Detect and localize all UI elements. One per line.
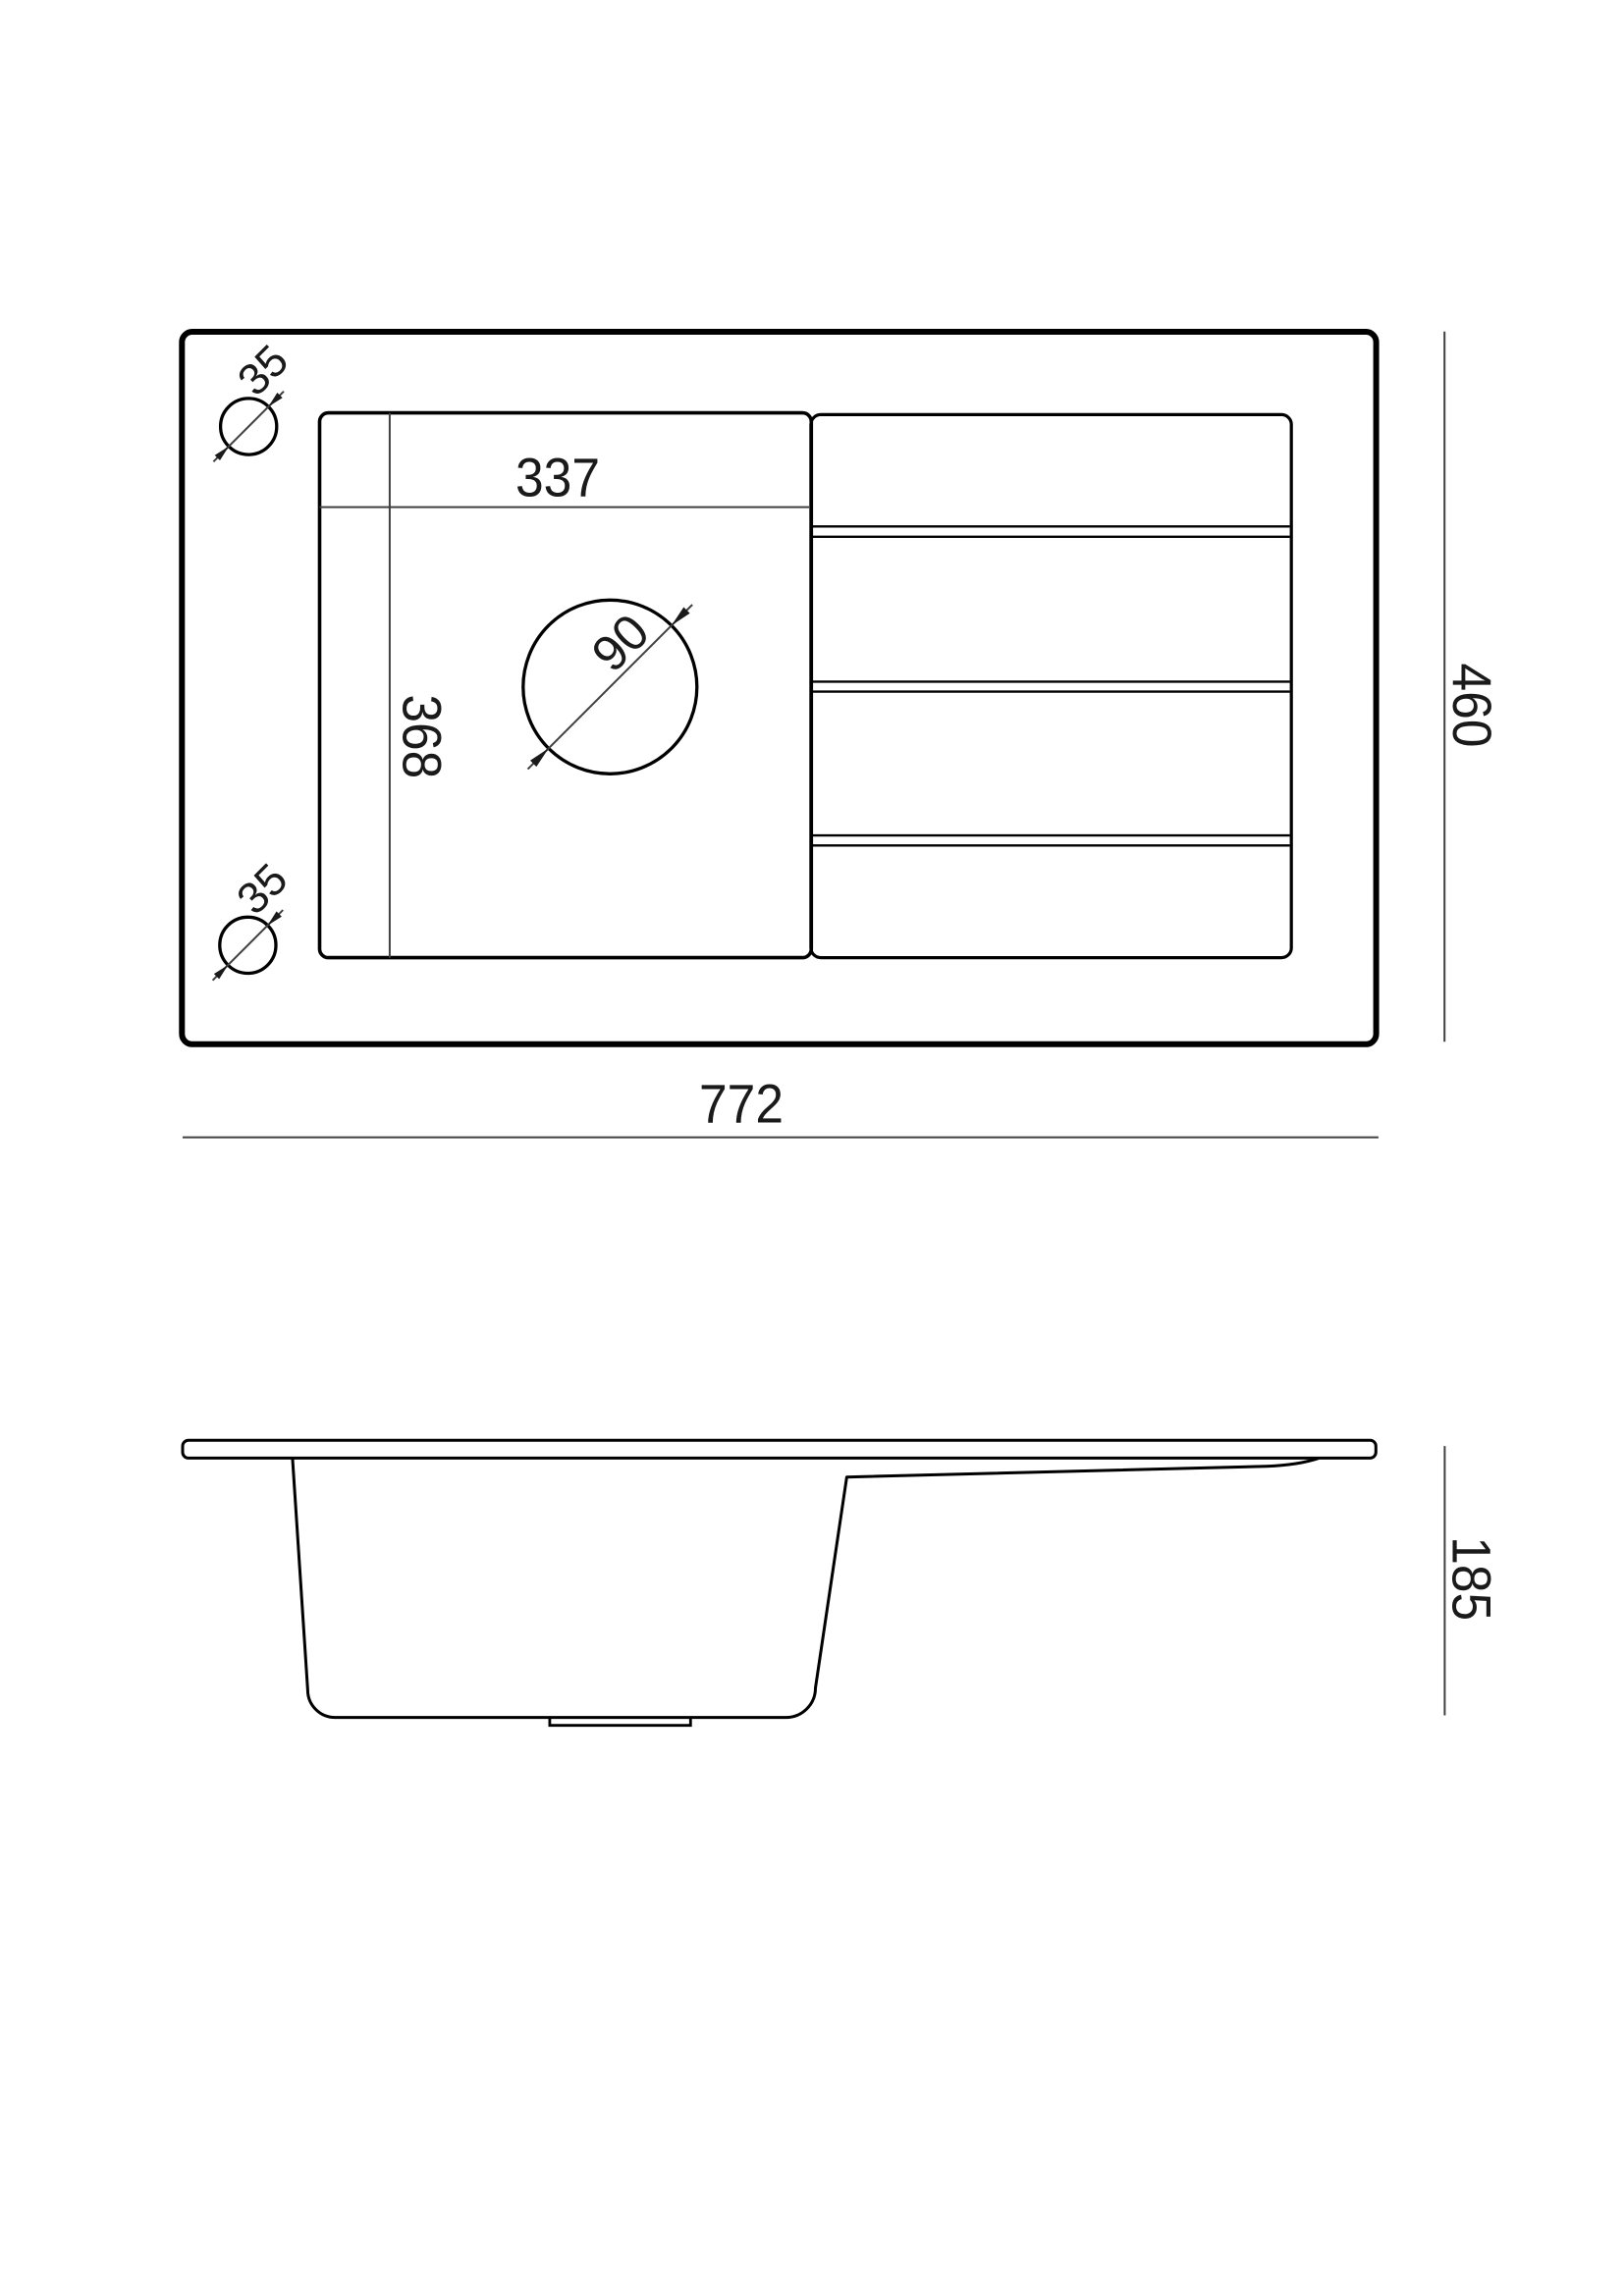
svg-text:185: 185: [1440, 1536, 1501, 1621]
svg-text:368: 368: [391, 694, 452, 778]
svg-text:772: 772: [699, 1074, 784, 1135]
svg-text:460: 460: [1440, 664, 1501, 748]
svg-text:337: 337: [515, 448, 600, 508]
